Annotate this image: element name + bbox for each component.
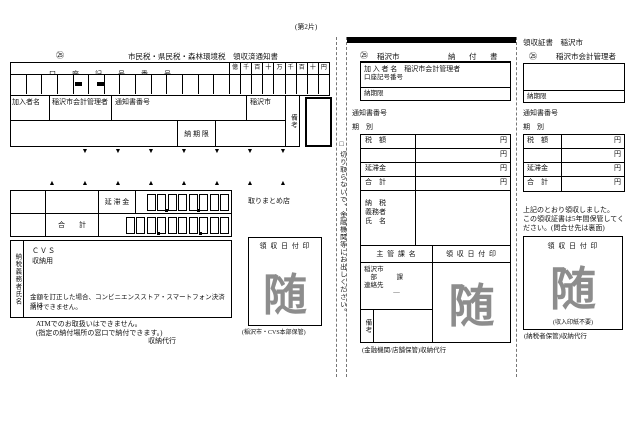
delay-amount-label: 延滞金 — [524, 163, 562, 176]
middle-payer-box: 加 入 者 名 稲沢市会計管理者 口座記号番号 納期限 — [360, 62, 511, 101]
total-amount-label: 合 計 — [524, 177, 562, 191]
payer-name-label: 加入者名 — [11, 96, 50, 120]
middle-period-label: 期 別 — [352, 123, 373, 132]
right-amount-table: 税 額 円 円 延滞金 円 合 計 円 — [523, 134, 625, 192]
correction-warning-line2: 納付できません。 — [30, 304, 228, 312]
blank-amount-unit: 円 — [416, 149, 510, 162]
tax-amount-unit: 円 — [416, 135, 510, 148]
up-arrow-icon: ▲ — [181, 179, 188, 187]
collection-store-label: 取りまとめ店 — [248, 197, 290, 206]
middle-payer-line: 加 入 者 名 稲沢市会計管理者 — [364, 65, 507, 74]
panel-top-black-bar — [347, 37, 516, 43]
down-arrow-icon: ▼ — [214, 147, 221, 155]
notice-number-label: 通知書番号 — [112, 96, 247, 120]
total-label: 合 計 — [46, 214, 99, 236]
digit-unit-header: 億 千 百 十 万 千 百 十 円 — [230, 63, 329, 74]
total-amount-unit: 円 — [562, 177, 624, 191]
middle-panel-title: 納 付 書 — [448, 52, 501, 61]
up-arrow-icon: ▲ — [148, 179, 155, 187]
cut-line-right — [516, 37, 517, 377]
up-arrow-icon: ▲ — [82, 179, 89, 187]
delay-digit-boxes — [136, 191, 231, 213]
up-arrow-icon: ▲ — [115, 179, 122, 187]
payment-slip-sheet: (第2片) ㉕ 市民税・県民税・森林環境税 領収済通知書 口座記号番号 億 千 … — [0, 0, 630, 439]
left-circled-mark: ㉕ — [56, 51, 64, 61]
comma-mark — [157, 232, 160, 235]
agency-label: 収納代行 — [148, 337, 176, 346]
down-arrow-icon: ▼ — [181, 147, 188, 155]
delay-amount-label: 延滞金 — [361, 163, 416, 176]
up-arrow-icon: ▲ — [280, 179, 287, 187]
due-date-label: 納 期 限 — [178, 121, 216, 147]
receipt-stamp-box-right: 領 収 日 付 印 随 (収入印紙不要) — [523, 236, 623, 330]
right-period-label: 期 別 — [523, 123, 544, 132]
middle-account-line: 口座記号番号 — [364, 74, 507, 82]
right-panel-title: 領収証書 稲沢市 — [523, 38, 583, 47]
total-digit-boxes — [99, 214, 231, 236]
down-arrow-icon: ▼ — [82, 147, 89, 155]
right-stamp-header: 領 収 日 付 印 — [524, 242, 622, 251]
down-arrow-icon: ▼ — [280, 147, 287, 155]
total-amount-unit: 円 — [416, 177, 510, 190]
down-arrow-icon: ▼ — [115, 147, 122, 155]
blank-amount-label — [361, 149, 416, 162]
cvs-use-label: 収納用 — [32, 257, 53, 266]
up-arrow-icon: ▲ — [247, 179, 254, 187]
payer-name-value: 稲沢市会計管理者 — [50, 96, 112, 120]
zui-stamp: 随 — [249, 259, 321, 323]
remarks-label: 備考 — [289, 114, 297, 129]
receipt-note-line3: ださい。(問合せ先は裏面) — [523, 224, 605, 233]
middle-remarks-label: 備考 — [363, 319, 371, 334]
receipt-note-line2: この領収証書は5年間保管してく — [523, 215, 624, 224]
strip-checkbox: □ — [337, 140, 346, 149]
dept-name-header: 主 管 課 名 — [361, 246, 433, 262]
left-panel-title: 市民税・県民税・森林環境税 領収済通知書 — [78, 52, 328, 61]
no-revenue-stamp-note: (収入印紙不要) — [524, 320, 622, 327]
middle-amount-table: 税 額 円 円 延滞金 円 合 計 円 納 税 義務者 氏 名 主 管 課 名 … — [360, 134, 511, 343]
cut-strip: □ 切り取らないで、金融機関等にお出しください。 — [336, 37, 347, 377]
stamp-frame-box — [305, 97, 332, 147]
right-due-label: 納期限 — [524, 91, 624, 103]
tax-amount-unit: 円 — [562, 135, 624, 148]
up-arrow-icon: ▲ — [49, 179, 56, 187]
atm-note-line1: ATMでのお取扱いはできません。 — [36, 320, 142, 329]
delay-amount-unit: 円 — [416, 163, 510, 176]
tax-amount-label: 税 額 — [524, 135, 562, 148]
comma-mark — [199, 232, 202, 235]
zui-stamp: 随 — [524, 253, 622, 319]
middle-stamp-header: 領 収 日 付 印 — [433, 246, 510, 262]
delay-total-table: 延 滞 金 合 計 — [10, 190, 232, 237]
right-payer-box: 納期限 — [523, 63, 625, 103]
middle-city-name: 稲沢市 — [377, 52, 400, 61]
amount-digit-cells — [230, 75, 329, 94]
payer-info-table: 加入者名 稲沢市会計管理者 通知書番号 稲沢市 納 期 限 備考 — [10, 95, 300, 147]
city-name: 稲沢市 — [247, 96, 285, 120]
middle-taxpayer-label: 納 税 義務者 氏 名 — [361, 191, 416, 245]
account-dash-mark — [75, 82, 82, 86]
strip-vertical-text: 切り取らないで、金融機関等にお出しください。 — [338, 151, 346, 351]
total-amount-label: 合 計 — [361, 177, 416, 190]
account-number-table: 口座記号番号 億 千 百 十 万 千 百 十 円 — [10, 62, 330, 96]
blank-amount-label — [524, 149, 562, 162]
dept-contact-block: 稲沢市 部 課 連絡先 ― — [361, 263, 432, 309]
middle-notice-number-label: 通知書番号 — [352, 109, 387, 118]
atm-note-line2: (指定の納付場所の窓口で納付できます。) — [36, 329, 162, 338]
cvs-label: ＣＶＳ — [32, 247, 56, 256]
receipt-stamp-box-left: 領 収 日 付 印 随 — [248, 237, 322, 326]
down-arrow-icon: ▼ — [247, 147, 254, 155]
zui-stamp: 随 — [449, 270, 495, 336]
keep-note-right: (納税者保管)収納代行 — [524, 333, 587, 341]
middle-circled-mark: ㉕ — [360, 51, 368, 61]
receipt-note-line1: 上記のとおり領収しました。 — [523, 206, 614, 215]
sheet-number-label: (第2片) — [295, 23, 317, 32]
account-digit-cells — [11, 75, 230, 94]
comma-mark — [197, 209, 200, 212]
keep-note-middle: (金融機関/店舗保管)収納代行 — [362, 347, 446, 355]
account-number-header: 口座記号番号 — [11, 70, 187, 74]
keep-note-left: (稲沢市・CVS本部保管) — [242, 330, 306, 337]
blank-amount-unit: 円 — [562, 149, 624, 162]
right-circled-mark: ㉕ — [529, 52, 537, 62]
down-arrow-icon: ▼ — [148, 147, 155, 155]
right-payer-value: 稲沢市会計管理者 — [556, 52, 616, 61]
account-dash-mark — [97, 82, 104, 86]
receipt-stamp-header: 領 収 日 付 印 — [249, 242, 321, 251]
tax-amount-label: 税 額 — [361, 135, 416, 148]
delay-fee-label: 延 滞 金 — [99, 191, 136, 213]
taxpayer-name-vertical-label: 納税義務者氏名 — [13, 253, 21, 306]
cvs-payment-box: 納税義務者氏名 ＣＶＳ 収納用 金額を訂正した場合、コンビニエンスストア・スマー… — [10, 240, 232, 318]
comma-mark — [165, 209, 168, 212]
delay-amount-unit: 円 — [562, 163, 624, 176]
up-arrow-icon: ▲ — [214, 179, 221, 187]
middle-due-label: 納期限 — [361, 88, 510, 100]
right-notice-number-label: 通知書番号 — [523, 109, 558, 118]
